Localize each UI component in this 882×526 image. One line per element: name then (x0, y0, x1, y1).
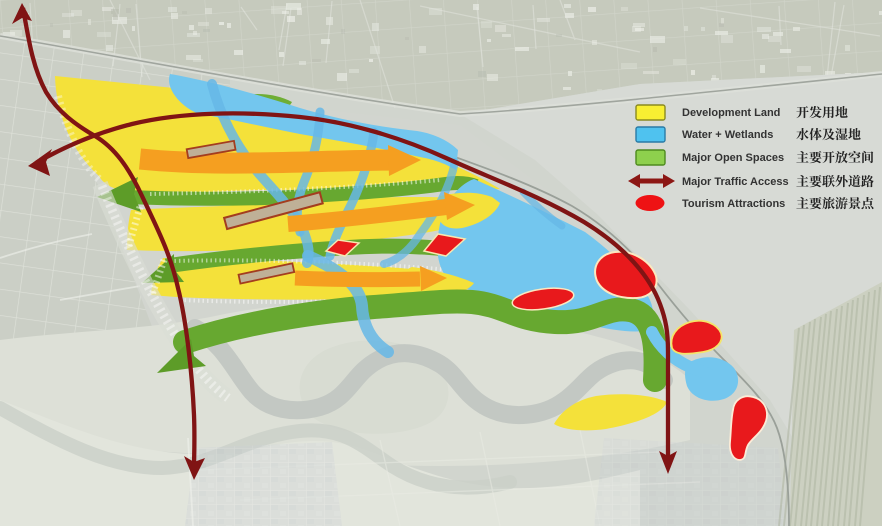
svg-text:Tourism Attractions: Tourism Attractions (682, 198, 785, 210)
svg-text:Major Traffic Access: Major Traffic Access (682, 176, 789, 188)
svg-text:Development Land: Development Land (682, 107, 780, 119)
svg-text:Major Open Spaces: Major Open Spaces (682, 152, 784, 164)
svg-text:Water + Wetlands: Water + Wetlands (682, 129, 773, 141)
